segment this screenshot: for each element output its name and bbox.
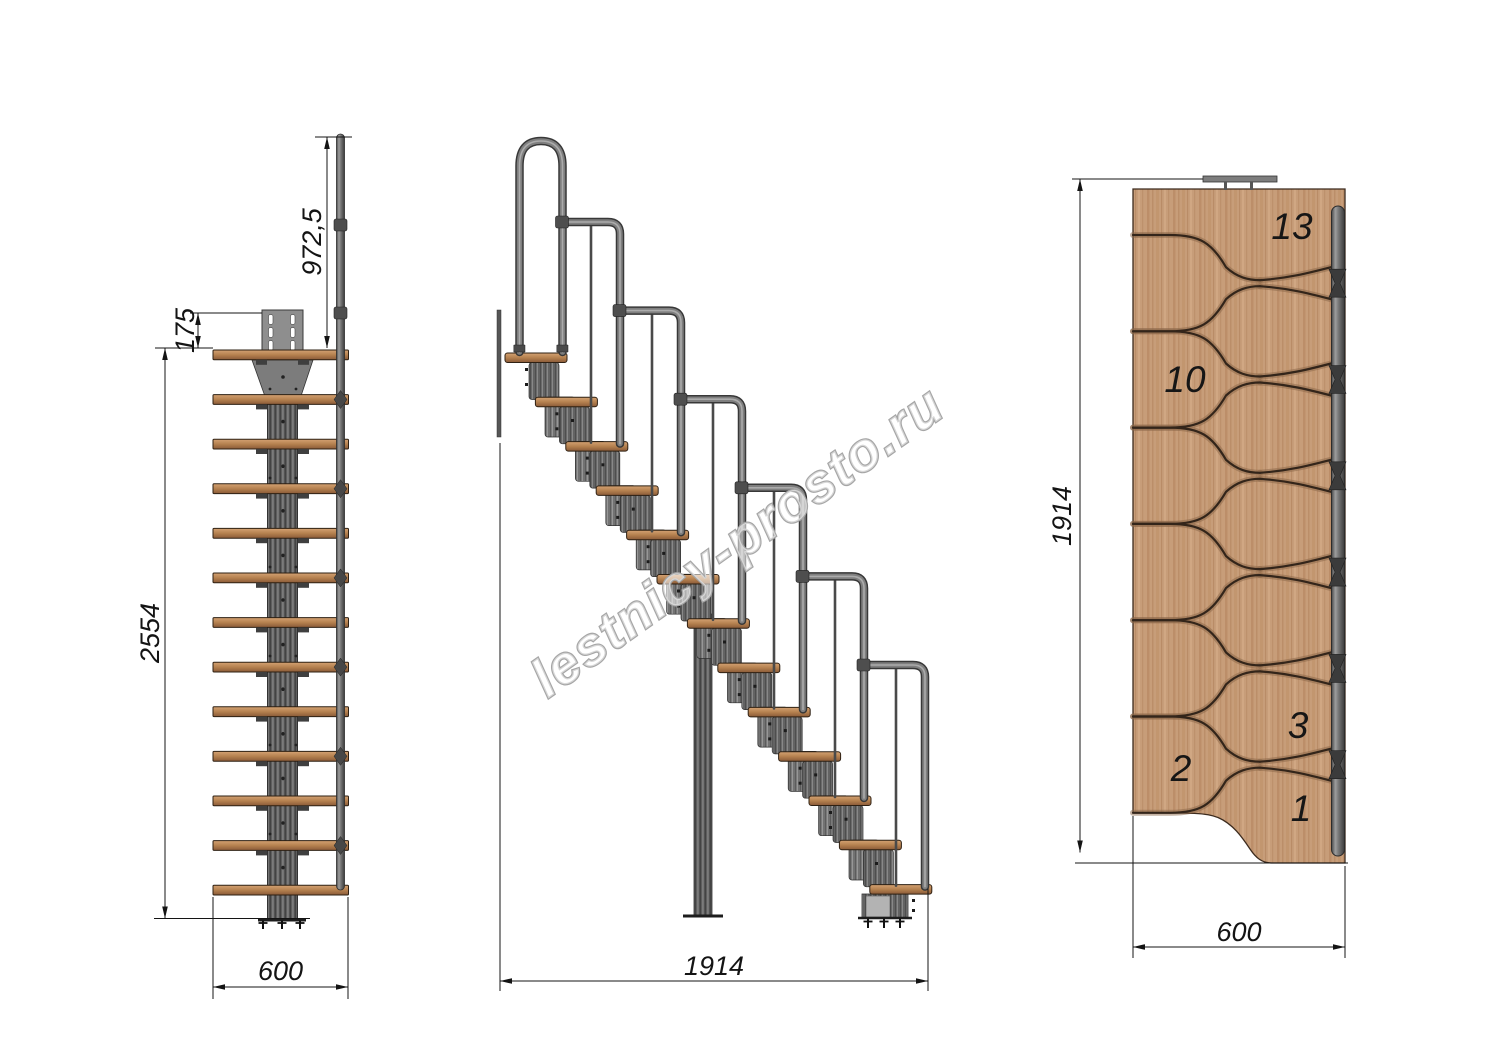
dim-plan-length-label: 1914 xyxy=(1047,486,1077,546)
dim-plan-width-label: 600 xyxy=(1216,917,1261,947)
dim-front-width-label: 600 xyxy=(258,956,303,986)
dim-side-length-label: 1914 xyxy=(684,951,744,981)
side-floor-module xyxy=(858,894,912,928)
plan-tread-2-label: 2 xyxy=(1170,748,1192,789)
front-wall-bracket xyxy=(262,310,303,352)
technical-drawing: 972,5 175 2554 600 xyxy=(0,0,1500,1061)
dim-bracket-offset-label: 175 xyxy=(170,307,200,353)
plan-tread-3-label: 3 xyxy=(1288,705,1309,746)
plan-view: 13 10 3 2 1 1914 600 xyxy=(1047,176,1348,958)
front-view: 972,5 175 2554 600 xyxy=(135,134,352,999)
dim-total-height-label: 2554 xyxy=(135,603,165,664)
plan-tread-1-label: 1 xyxy=(1291,788,1312,829)
plan-tread-13-label: 13 xyxy=(1271,206,1313,247)
front-dimensions: 972,5 175 2554 600 xyxy=(135,137,352,999)
plan-wall-bracket xyxy=(1203,176,1277,190)
side-anchor-bolts xyxy=(864,919,905,929)
side-wall-plate xyxy=(497,310,501,437)
staircase-drawing-page: 972,5 175 2554 600 xyxy=(0,0,1500,1061)
front-handrail-post xyxy=(334,134,347,890)
plan-handrail xyxy=(1329,206,1346,856)
handrail-loop xyxy=(520,141,563,352)
handrail-loop-feet xyxy=(514,345,568,352)
dim-handrail-height-label: 972,5 xyxy=(297,207,327,276)
plan-tread-10-label: 10 xyxy=(1164,359,1206,400)
side-handrail xyxy=(514,141,925,887)
front-anchor-bolts xyxy=(259,921,305,930)
